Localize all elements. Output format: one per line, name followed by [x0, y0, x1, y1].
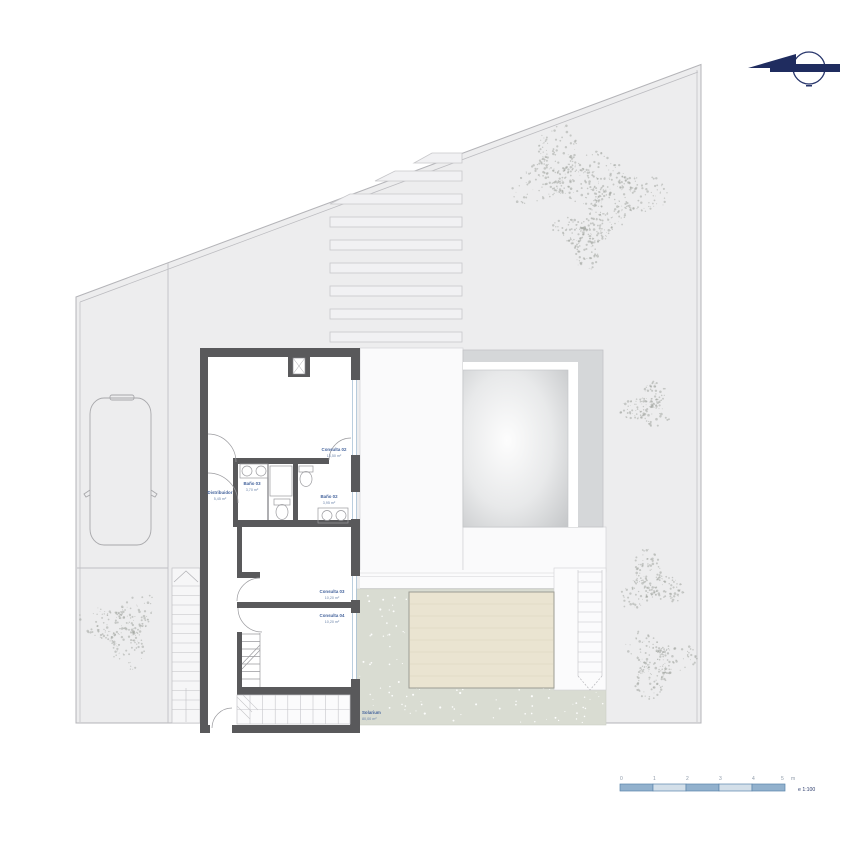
- scale-tick-0: 0: [620, 776, 623, 782]
- room-label-consulta-03: Consulta 03: [320, 589, 345, 594]
- building-interior: [204, 352, 356, 729]
- building: Consulta 02 13,50 m² Baño 03 3,70 m² Dis…: [200, 348, 360, 733]
- skylight: [463, 350, 603, 527]
- room-area-consulta-02: 13,50 m²: [327, 454, 342, 458]
- entrance-porch: [237, 695, 350, 724]
- room-label-bano-03: Baño 03: [243, 481, 261, 486]
- floor-plan-page: Solarium 80,00 m²: [0, 0, 845, 851]
- room-area-distribuidor: 5,45 m²: [214, 497, 227, 501]
- scale-tick-5: 5: [781, 776, 784, 782]
- side-steps: [172, 568, 200, 723]
- scale-ratio-label: e 1:100: [798, 787, 815, 793]
- chimney-shaft: [293, 358, 305, 374]
- scale-tick-2: 2: [686, 776, 689, 782]
- room-label-consulta-02: Consulta 02: [322, 447, 347, 452]
- glass-panel: [463, 370, 568, 527]
- solarium-area: Solarium 80,00 m²: [356, 568, 606, 725]
- scale-unit-label: m: [791, 776, 795, 782]
- floor-plan-drawing: Solarium 80,00 m²: [0, 0, 845, 851]
- scale-tick-4: 4: [752, 776, 755, 782]
- room-area-bano-02: 3,95 m²: [323, 501, 336, 505]
- pool-walkway: [554, 568, 606, 690]
- room-label-consulta-04: Consulta 04: [320, 613, 345, 618]
- room-label-distribuidor: Distribuidor: [208, 490, 233, 495]
- outdoor-stairs: [330, 153, 462, 342]
- room-label-bano-02: Baño 02: [320, 494, 338, 499]
- room-area-consulta-04: 10,20 m²: [325, 620, 340, 624]
- scale-tick-3: 3: [719, 776, 722, 782]
- scale-tick-1: 1: [653, 776, 656, 782]
- room-label-solarium: Solarium: [362, 710, 381, 715]
- room-area-bano-03: 3,70 m²: [246, 488, 259, 492]
- scale-bar: 0 1 2 3 4 5 m e 1:100: [620, 776, 815, 793]
- north-arrow-icon: [748, 52, 840, 87]
- pool-deck: [409, 592, 554, 688]
- room-area-consulta-03: 10,20 m²: [325, 596, 340, 600]
- room-area-solarium: 80,00 m²: [362, 717, 377, 721]
